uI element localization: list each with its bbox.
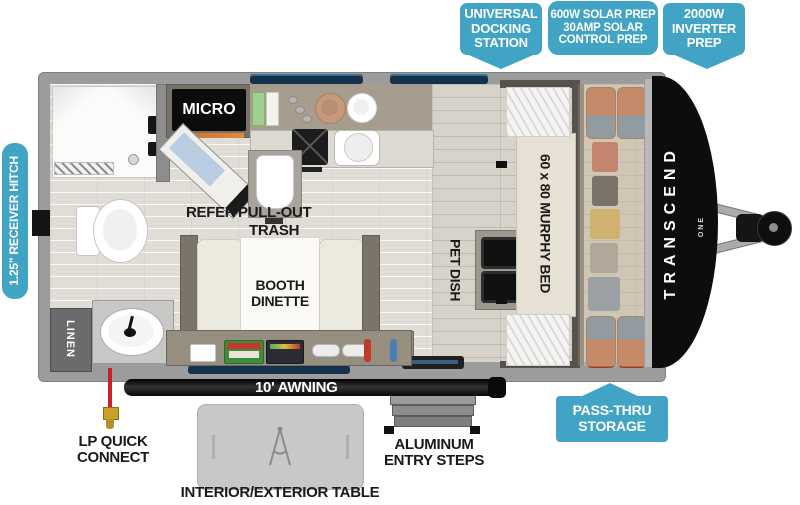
murphy-bed-label: 60 x 80 MURPHY BED <box>538 154 553 293</box>
faucet-icon <box>124 328 136 337</box>
pass-thru-storage-area <box>580 84 650 366</box>
awning-label: 10' AWNING <box>255 379 338 396</box>
steps-label-line: ENTRY STEPS <box>374 453 494 469</box>
pet-dish-bowl <box>481 237 521 269</box>
callout-line: UNIVERSAL <box>464 7 537 22</box>
booth-label: DINETTE <box>251 293 309 309</box>
plate-center <box>353 99 369 115</box>
bed-latch <box>496 161 507 168</box>
step-leg <box>470 426 480 434</box>
sofa-cushion <box>506 87 570 137</box>
bottle-icon <box>364 339 371 362</box>
steps-label: ALUMINUM ENTRY STEPS <box>374 437 494 469</box>
floorplan-diagram: UNIVERSAL DOCKING STATION 600W SOLAR PRE… <box>0 0 800 505</box>
callout-arrow-icon <box>580 383 640 397</box>
utensil-icon <box>302 115 312 123</box>
trash-label: TRASH <box>249 223 299 239</box>
kitchen-sink-bowl <box>344 133 373 162</box>
refer-label: REFER <box>186 205 235 221</box>
callout-inverter-prep: 2000W INVERTER PREP <box>663 3 745 55</box>
step-leg <box>384 426 394 434</box>
callout-line: CONTROL PREP <box>559 34 648 47</box>
callout-line: DOCKING <box>471 22 531 37</box>
callout-line: 30AMP SOLAR <box>563 22 642 35</box>
callout-line: 600W SOLAR PREP <box>551 9 656 22</box>
callout-pass-thru-storage: PASS-THRU STORAGE <box>556 396 668 442</box>
receiver-hitch-bracket <box>32 210 50 236</box>
pull-out-label: PULL-OUT <box>238 205 311 221</box>
window <box>390 74 488 84</box>
callout-solar-prep: 600W SOLAR PREP 30AMP SOLAR CONTROL PREP <box>548 1 658 55</box>
micro-label: MICRO <box>182 101 235 119</box>
brand-label: TRANSCEND <box>662 145 680 299</box>
steps-label-line: ALUMINUM <box>374 437 494 453</box>
brand-sub-label: ONE <box>698 216 705 237</box>
lp-fitting-tip <box>106 419 114 429</box>
window <box>250 74 363 84</box>
callout-line: PREP <box>687 36 722 51</box>
callout-receiver-hitch: 1.25" RECEIVER HITCH <box>2 143 28 299</box>
game-card-box <box>190 344 216 362</box>
pet-dish-label: PET DISH <box>448 239 463 301</box>
board-game-box <box>266 340 304 364</box>
jack-wheel-hub <box>769 223 778 232</box>
utensil-icon <box>295 106 305 114</box>
callout-arrow-icon <box>670 53 744 69</box>
serving-board-center <box>321 99 338 116</box>
step-tread <box>394 416 472 427</box>
callout-line: PASS-THRU <box>573 403 652 419</box>
callout-line: STATION <box>474 36 528 51</box>
toilet-lid <box>103 209 137 251</box>
shower-drain <box>128 154 139 165</box>
interior-exterior-table <box>197 404 364 490</box>
utensil-icon <box>288 96 298 104</box>
linen-label: LINEN <box>64 320 76 358</box>
shower-door-track <box>54 162 114 175</box>
lp-line <box>108 368 112 408</box>
lp-label-line: CONNECT <box>58 450 168 466</box>
callout-line: INVERTER <box>672 22 736 37</box>
step-tread <box>392 405 474 416</box>
callout-arrow-icon <box>464 53 538 69</box>
cutting-board <box>252 92 265 126</box>
callout-universal-docking-station: UNIVERSAL DOCKING STATION <box>460 3 542 55</box>
pull-out-trash-bin <box>256 155 294 209</box>
table-print <box>212 435 215 459</box>
board-game-box <box>224 340 264 364</box>
awning-end-cap <box>488 377 506 398</box>
booth-label: BOOTH <box>255 277 304 293</box>
callout-line: STORAGE <box>578 419 646 435</box>
bed-latch <box>496 297 507 304</box>
cutting-board <box>266 92 279 126</box>
table-print <box>346 435 349 459</box>
lp-label-line: LP QUICK <box>58 434 168 450</box>
bottle-icon <box>390 339 397 362</box>
table-label: INTERIOR/EXTERIOR TABLE <box>180 485 380 501</box>
sofa-cushion <box>506 314 570 366</box>
game-controller-icon <box>312 344 340 357</box>
callout-line: 2000W <box>684 7 724 22</box>
callout-line: 1.25" RECEIVER HITCH <box>8 156 21 286</box>
lp-quick-connect-label: LP QUICK CONNECT <box>58 434 168 466</box>
compass-icon <box>260 425 300 469</box>
